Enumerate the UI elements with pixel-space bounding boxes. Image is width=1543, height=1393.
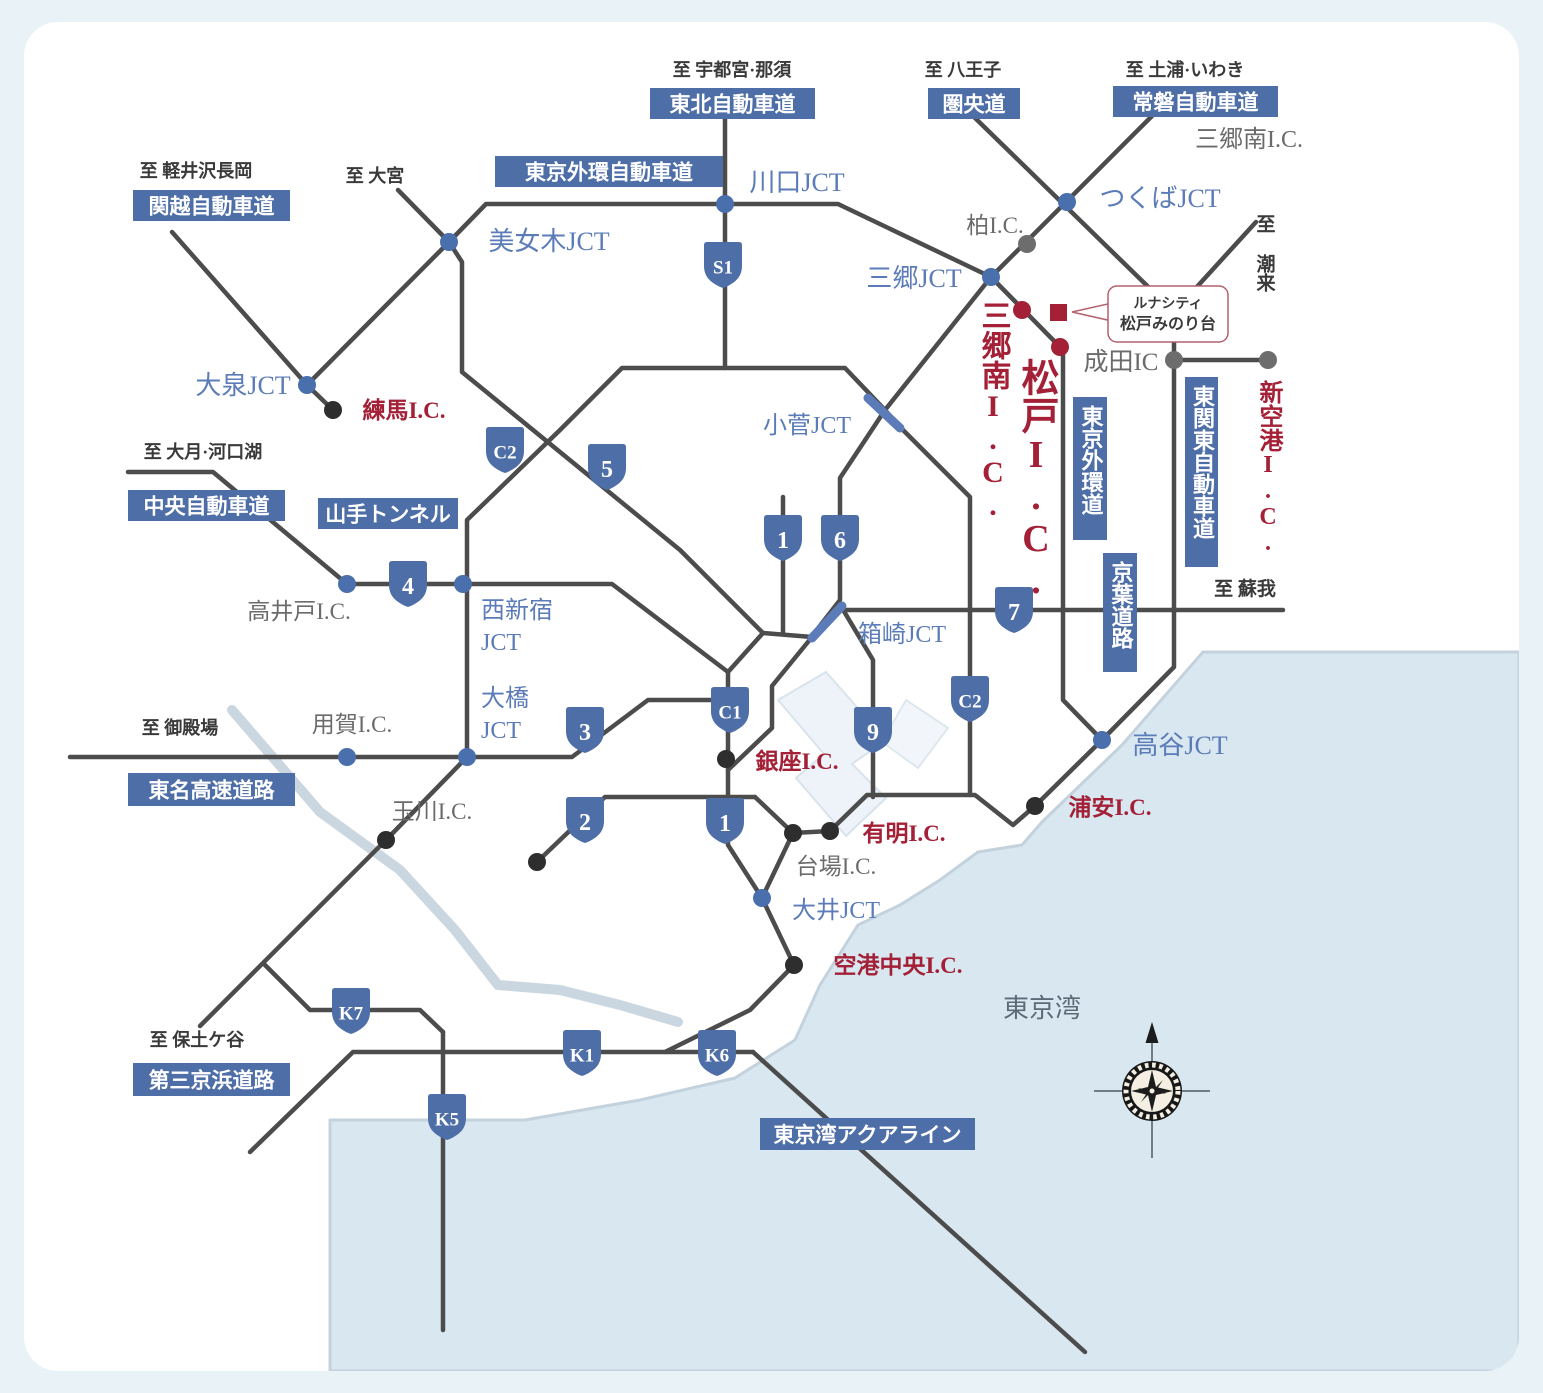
route-shield-label: K7 xyxy=(339,1004,364,1025)
route-shield-label: 2 xyxy=(579,810,591,836)
map-label: 至 八王子 xyxy=(925,60,1002,80)
road-badge-label: 山手トンネル xyxy=(325,503,451,527)
black-junction-node xyxy=(377,831,395,849)
road-badge-label: 東京外環道 xyxy=(1079,405,1104,515)
black-junction-node xyxy=(717,750,735,768)
map-label: 有明I.C. xyxy=(862,820,945,846)
road-badge-label: 東北自動車道 xyxy=(670,93,796,117)
map-label: 玉川I.C. xyxy=(392,799,473,824)
blue-junction-node xyxy=(1058,193,1076,211)
black-junction-node xyxy=(785,956,803,974)
map-label: 柏I.C. xyxy=(966,213,1024,238)
red-junction-node xyxy=(1013,301,1031,319)
map-label: 台場I.C. xyxy=(796,854,877,879)
map-label: 銀座I.C. xyxy=(755,748,838,774)
road-badge-keiyo-road: 京葉道路 xyxy=(1103,553,1137,672)
road-badge-label: 第三京浜道路 xyxy=(149,1069,276,1093)
blue-junction-node xyxy=(454,575,472,593)
sea-label: 東京湾 xyxy=(1003,994,1081,1023)
road-badge-kenodo: 圏央道 xyxy=(928,88,1020,119)
route-shield-label: 5 xyxy=(601,457,613,483)
map-label: 至 大宮 xyxy=(346,165,405,186)
map-label: 大橋 xyxy=(481,685,529,712)
road-badge-kanetsu-expwy: 関越自動車道 xyxy=(133,190,290,221)
map-label: 用賀I.C. xyxy=(312,712,393,737)
map-label: 高井戸I.C. xyxy=(247,599,351,624)
map-label: 至 宇都宮·那須 xyxy=(673,59,793,80)
blue-junction-node xyxy=(716,195,734,213)
blue-junction-node xyxy=(440,233,458,251)
map-label: 至 潮来 xyxy=(1254,214,1276,293)
map-label: 至 軽井沢長岡 xyxy=(140,160,253,181)
route-shield-label: 4 xyxy=(402,574,414,600)
route-map-canvas: 東北自動車道圏央道常磐自動車道関越自動車道東京外環自動車道中央自動車道山手トンネ… xyxy=(0,0,1543,1393)
gray-junction-node xyxy=(1165,351,1183,369)
black-junction-node xyxy=(821,822,839,840)
blue-junction-node xyxy=(338,575,356,593)
map-label: 美女木JCT xyxy=(488,227,609,256)
map-label: 大井JCT xyxy=(792,897,880,924)
landmark-marker xyxy=(1050,304,1067,321)
map-label: 西新宿 xyxy=(481,597,553,624)
map-label: 小菅JCT xyxy=(763,412,851,439)
road-badge-label: 東京湾アクアライン xyxy=(774,1123,962,1147)
road-badge-label: 東関東自動車道 xyxy=(1190,385,1215,539)
map-label: 至 蘇我 xyxy=(1214,578,1276,600)
blue-junction-node xyxy=(1093,731,1111,749)
road-badge-joban-expwy: 常磐自動車道 xyxy=(1113,86,1278,117)
blue-junction-node xyxy=(338,748,356,766)
callout-line2: 松戸みのり台 xyxy=(1120,314,1216,333)
gray-junction-node xyxy=(1259,351,1277,369)
map-label: 練馬I.C. xyxy=(362,397,445,423)
road-badge-chuo-expwy: 中央自動車道 xyxy=(128,490,285,521)
road-badge-label: 東京外環自動車道 xyxy=(525,161,693,185)
map-label: 至 大月·河口湖 xyxy=(144,441,263,462)
road-badge-label: 圏央道 xyxy=(943,93,1006,117)
map-label: 松戸I.C. xyxy=(1015,358,1059,602)
blue-junction-node xyxy=(982,268,1000,286)
map-label: 高谷JCT xyxy=(1132,731,1227,760)
route-shield-label: C1 xyxy=(718,703,741,724)
road-badge-label: 関越自動車道 xyxy=(149,195,275,219)
map-label: 空港中央I.C. xyxy=(833,952,962,978)
black-junction-node xyxy=(1026,797,1044,815)
route-shield-label: K5 xyxy=(435,1110,459,1131)
road-badge-tokyo-gaikan-expwy: 東京外環自動車道 xyxy=(495,156,723,187)
route-shield-label: 6 xyxy=(834,528,846,554)
road-badge-tohoku-expwy: 東北自動車道 xyxy=(650,88,815,119)
road-badge-label: 常磐自動車道 xyxy=(1133,91,1259,115)
map-label: 至 土浦·いわき xyxy=(1126,59,1245,80)
map-label: 新空港I.C. xyxy=(1255,379,1283,556)
road-badge-aqualine: 東京湾アクアライン xyxy=(760,1118,975,1150)
road-badge-tomei-expwy: 東名高速道路 xyxy=(128,773,295,806)
road-badge-yamate-tunnel: 山手トンネル xyxy=(318,498,458,529)
road-badge-daisan-keihin: 第三京浜道路 xyxy=(133,1063,290,1096)
map-label: 大泉JCT xyxy=(195,371,290,400)
route-shield-label: 7 xyxy=(1008,600,1020,626)
red-junction-node xyxy=(1051,338,1069,356)
callout-line1: ルナシティ xyxy=(1133,295,1202,311)
road-badge-label: 東名高速道路 xyxy=(149,779,276,803)
black-junction-node xyxy=(324,401,342,419)
route-shield-label: C2 xyxy=(958,692,981,713)
road-badge-label: 中央自動車道 xyxy=(144,495,270,519)
black-junction-node xyxy=(528,853,546,871)
map-label: JCT xyxy=(481,718,521,744)
route-shield-label: C2 xyxy=(493,443,516,464)
road-badge-higashi-kanto-expwy: 東関東自動車道 xyxy=(1185,377,1218,567)
route-shield-label: K6 xyxy=(705,1046,729,1067)
blue-junction-node xyxy=(753,889,771,907)
route-shield-label: 9 xyxy=(867,720,879,746)
road-badge-label: 京葉道路 xyxy=(1109,560,1135,649)
route-shield-label: K1 xyxy=(570,1046,594,1067)
map-label: 三郷JCT xyxy=(866,264,961,293)
map-label: 浦安I.C. xyxy=(1068,794,1151,820)
route-shield-label: S1 xyxy=(713,258,733,279)
route-shield-label: 1 xyxy=(719,811,731,837)
map-label: 川口JCT xyxy=(749,168,844,197)
black-junction-node xyxy=(784,824,802,842)
map-label: 三郷南I.C. xyxy=(1195,126,1303,153)
map-label: JCT xyxy=(481,630,521,656)
map-label: 箱崎JCT xyxy=(858,621,946,648)
blue-junction-node xyxy=(458,748,476,766)
blue-junction-node xyxy=(298,376,316,394)
route-shield-label: 1 xyxy=(777,528,789,554)
road-badge-tokyo-gaikando: 東京外環道 xyxy=(1073,397,1107,540)
map-label: 至 保土ケ谷 xyxy=(150,1029,245,1050)
map-label: 至 御殿場 xyxy=(142,717,219,738)
map-label: つくばJCT xyxy=(1099,184,1220,213)
map-label: 三郷南I.C. xyxy=(977,300,1012,522)
map-label: 成田IC xyxy=(1083,348,1158,376)
route-shield-label: 3 xyxy=(579,720,591,746)
